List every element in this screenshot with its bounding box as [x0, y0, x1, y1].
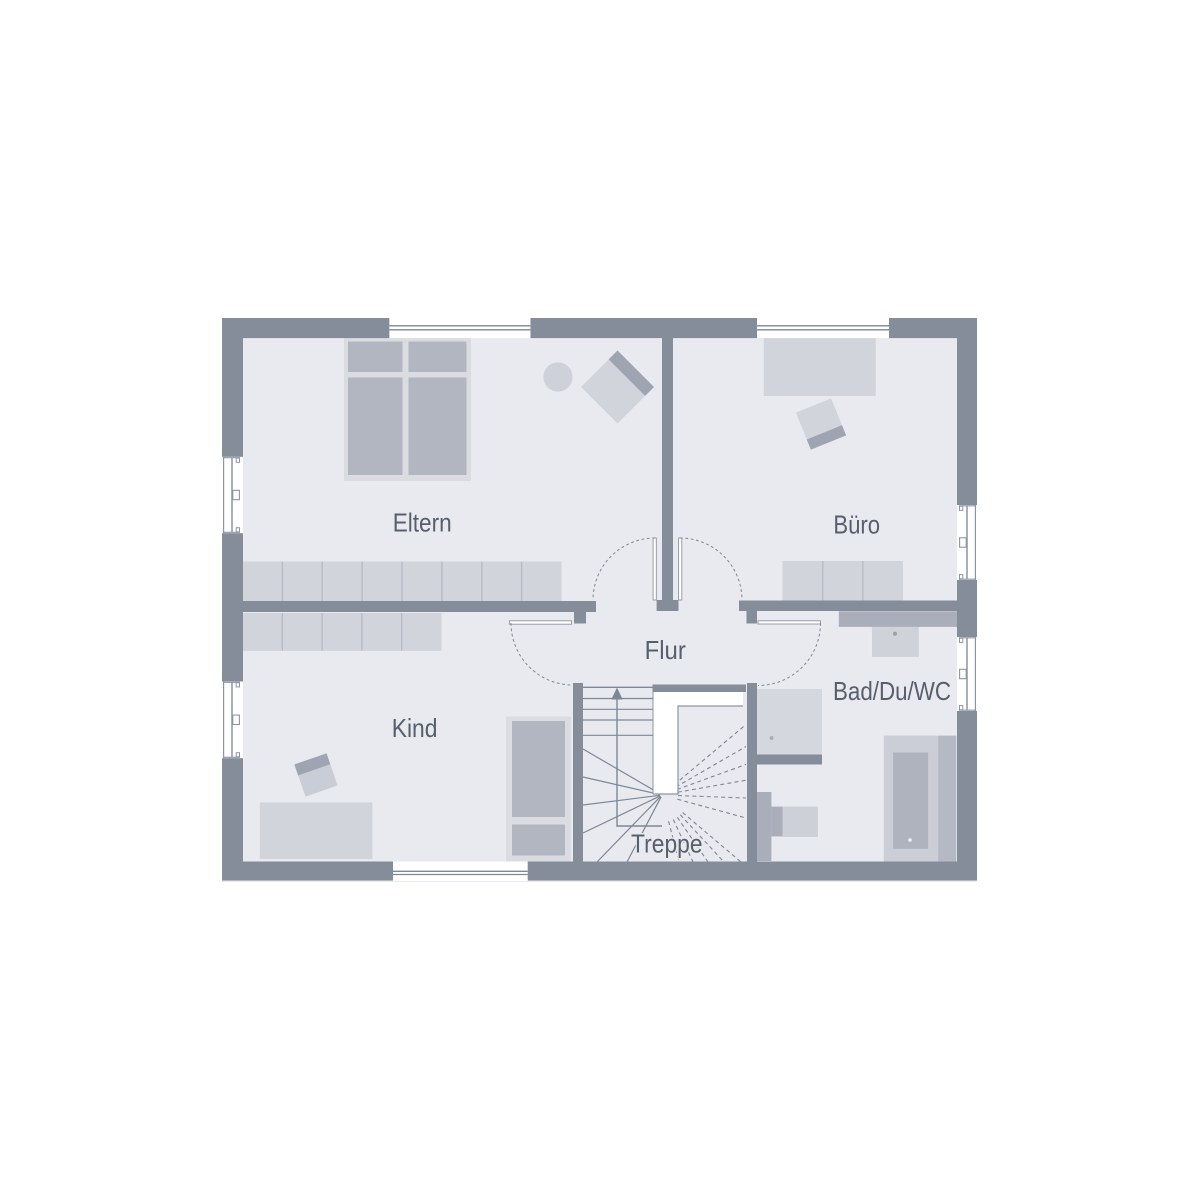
svg-text:Flur: Flur — [645, 635, 687, 665]
svg-text:Bad/Du/WC: Bad/Du/WC — [833, 676, 951, 706]
svg-text:Büro: Büro — [833, 510, 880, 540]
svg-text:Kind: Kind — [392, 713, 438, 743]
svg-text:Treppe: Treppe — [631, 829, 703, 859]
svg-text:Eltern: Eltern — [393, 508, 452, 538]
